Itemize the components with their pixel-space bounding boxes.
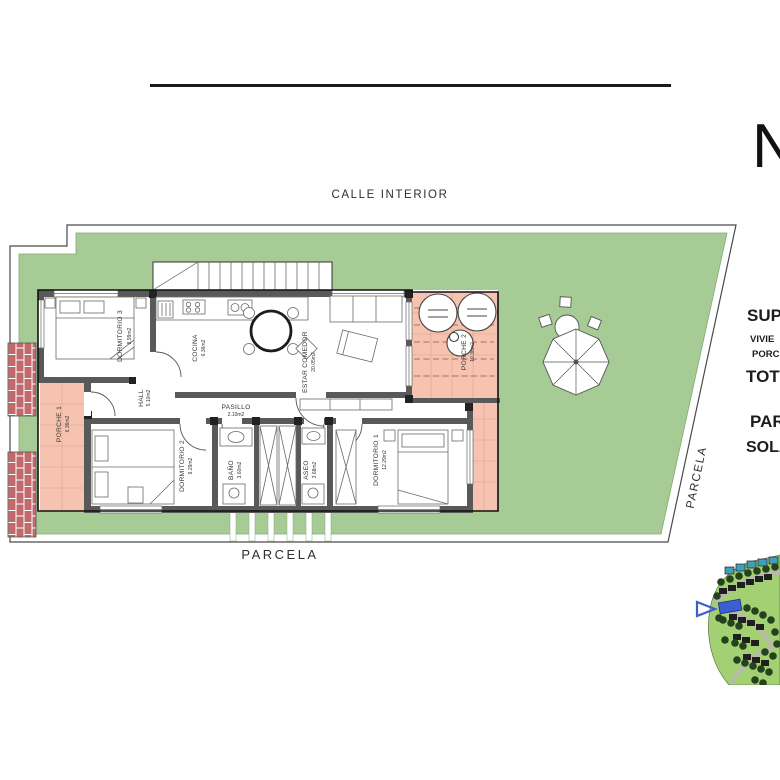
room-label-dormitorio-2: DORMITORIO 2 bbox=[179, 440, 186, 492]
summary-total: TOT bbox=[746, 367, 780, 387]
room-label-hall: HALL bbox=[138, 389, 145, 407]
room-area-cocina: 6.36m2 bbox=[201, 339, 207, 356]
room-label-dormitorio-3: DORMITORIO 3 bbox=[117, 310, 124, 362]
floor-plan-page: N CALLE INTERIOR bbox=[0, 0, 780, 780]
floor-plan-drawing: DORMITORIO 3 8.99m2 COCINA 6.36m2 ESTAR … bbox=[0, 0, 780, 780]
summary-porches: PORC bbox=[752, 349, 779, 360]
room-label-dormitorio-1: DORMITORIO 1 bbox=[373, 434, 380, 486]
site-map bbox=[695, 552, 780, 685]
room-area-dormitorio-3: 8.99m2 bbox=[127, 327, 133, 344]
room-area-porche-1: 6.36m2 bbox=[65, 415, 71, 432]
parcel-bottom-label: PARCELA bbox=[0, 547, 560, 562]
room-label-pasillo: PASILLO bbox=[221, 404, 250, 411]
room-label-estar-comedor: ESTAR COMEDOR bbox=[302, 331, 309, 393]
room-area-estar-comedor: 20.05m2 bbox=[311, 352, 317, 372]
umbrella-icon bbox=[543, 329, 609, 395]
parcel-side-label: PARCELA bbox=[685, 445, 710, 509]
room-label-cocina: COCINA bbox=[192, 334, 199, 362]
room-area-dormitorio-2: 9.29m2 bbox=[188, 457, 194, 474]
room-label-aseo: ASEO bbox=[303, 460, 310, 480]
room-label-porche-2: PORCHE 2 bbox=[461, 334, 468, 370]
room-area-aseo: 3.68m2 bbox=[312, 461, 318, 478]
room-label-bano: BAÑO bbox=[226, 460, 235, 480]
room-label-porche-1: PORCHE 1 bbox=[56, 406, 63, 442]
summary-parcela: PAR bbox=[750, 412, 780, 432]
room-area-dormitorio-1: 12.29m2 bbox=[382, 450, 388, 470]
room-area-bano: 3.60m2 bbox=[237, 461, 243, 478]
summary-vivienda: VIVIE bbox=[750, 334, 774, 345]
room-area-hall: 5.10m2 bbox=[146, 389, 152, 406]
summary-solarium: SOLA bbox=[746, 439, 780, 457]
summary-superficies: SUP bbox=[747, 306, 780, 326]
room-area-porche-2: 10.36m2 bbox=[470, 342, 476, 362]
room-area-pasillo: 2.10m2 bbox=[228, 412, 245, 418]
staircase bbox=[153, 262, 332, 290]
